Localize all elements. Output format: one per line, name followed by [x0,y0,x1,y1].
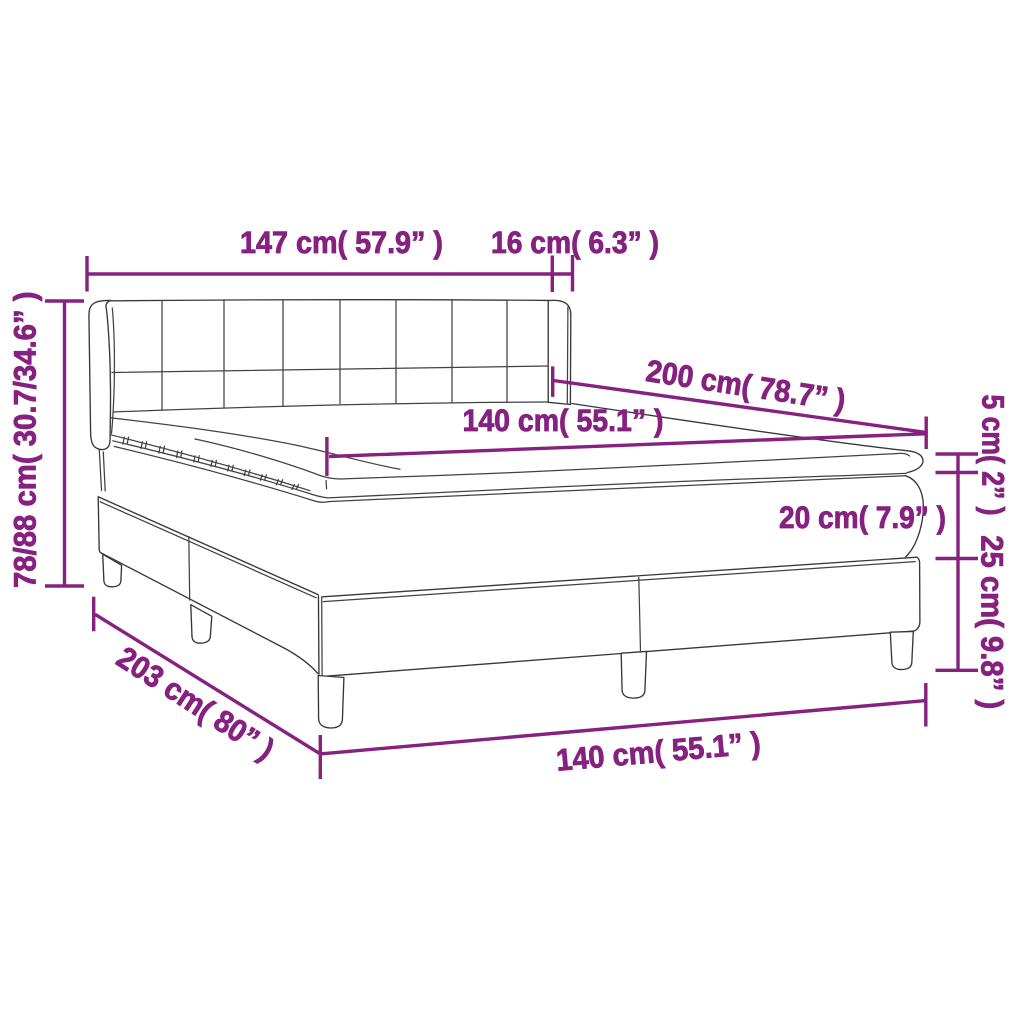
svg-text:16 cm( 6.3” ): 16 cm( 6.3” ) [491,225,659,260]
svg-text:147 cm( 57.9” ): 147 cm( 57.9” ) [240,225,443,260]
svg-text:25 cm( 9.8” ): 25 cm( 9.8” ) [975,535,1010,709]
svg-text:20 cm( 7.9” ): 20 cm( 7.9” ) [779,500,946,535]
svg-text:78/88 cm( 30.7/34.6” ): 78/88 cm( 30.7/34.6” ) [8,292,43,589]
svg-text:5 cm( 2” ): 5 cm( 2” ) [976,395,1011,516]
svg-text:140 cm( 55.1” ): 140 cm( 55.1” ) [463,403,664,438]
